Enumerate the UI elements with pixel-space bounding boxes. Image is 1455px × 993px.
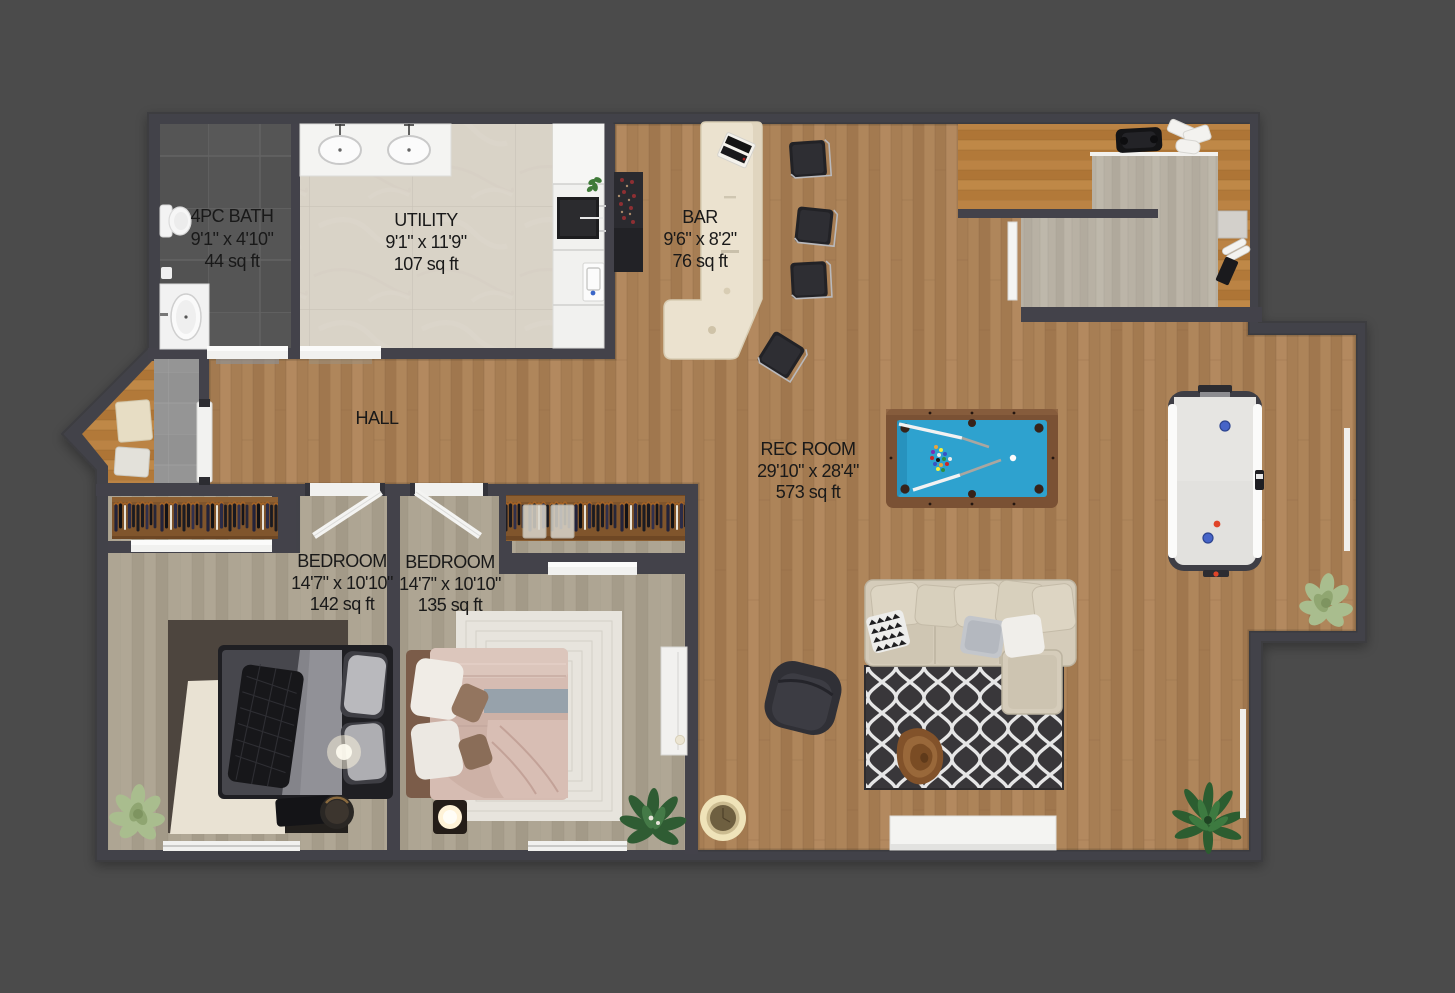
svg-text:14'7" x 10'10": 14'7" x 10'10" (399, 574, 501, 594)
svg-text:44 sq ft: 44 sq ft (204, 251, 260, 271)
svg-text:4PC BATH: 4PC BATH (191, 206, 274, 226)
svg-text:142 sq ft: 142 sq ft (310, 594, 375, 614)
svg-text:BEDROOM: BEDROOM (297, 551, 387, 571)
svg-text:573 sq ft: 573 sq ft (776, 482, 841, 502)
svg-text:76 sq ft: 76 sq ft (672, 251, 728, 271)
svg-text:BAR: BAR (682, 207, 718, 227)
svg-text:9'1" x 4'10": 9'1" x 4'10" (191, 229, 274, 249)
svg-text:107 sq ft: 107 sq ft (394, 254, 459, 274)
svg-text:REC ROOM: REC ROOM (761, 439, 856, 459)
svg-text:9'1" x 11'9": 9'1" x 11'9" (385, 232, 466, 252)
svg-text:14'7" x 10'10": 14'7" x 10'10" (291, 573, 393, 593)
svg-text:UTILITY: UTILITY (394, 210, 458, 230)
svg-text:BEDROOM: BEDROOM (405, 552, 495, 572)
svg-text:135 sq ft: 135 sq ft (418, 595, 483, 615)
svg-text:9'6" x 8'2": 9'6" x 8'2" (663, 229, 736, 249)
svg-text:HALL: HALL (355, 408, 399, 428)
svg-text:29'10" x 28'4": 29'10" x 28'4" (757, 461, 859, 481)
